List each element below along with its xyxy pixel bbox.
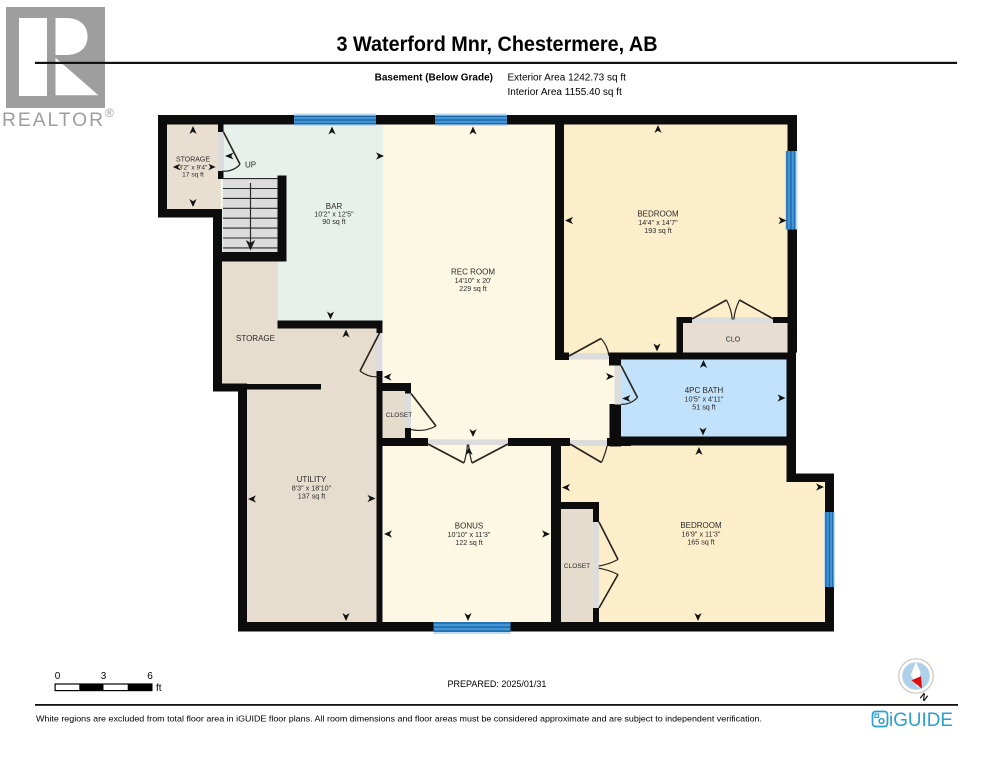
- svg-text:3 Waterford Mnr, Chestermere,: 3 Waterford Mnr, Chestermere, AB: [337, 33, 658, 56]
- svg-text:Exterior Area 1242.73 sq ft: Exterior Area 1242.73 sq ft: [508, 73, 627, 84]
- svg-text:REALTOR: REALTOR: [2, 109, 105, 131]
- svg-text:STORAGE: STORAGE: [176, 157, 210, 164]
- svg-text:Interior Area 1155.40 sq ft: Interior Area 1155.40 sq ft: [508, 87, 623, 98]
- svg-text:165 sq ft: 165 sq ft: [687, 538, 715, 547]
- svg-text:PREPARED: 2025/01/31: PREPARED: 2025/01/31: [448, 679, 547, 689]
- svg-text:6: 6: [147, 671, 153, 682]
- svg-text:193 sq ft: 193 sq ft: [644, 226, 672, 235]
- svg-text:229 sq ft: 229 sq ft: [459, 284, 487, 293]
- svg-text:0: 0: [55, 671, 61, 682]
- svg-text:UP: UP: [245, 161, 256, 170]
- svg-text:51 sq ft: 51 sq ft: [692, 403, 716, 412]
- svg-text:90 sq ft: 90 sq ft: [322, 217, 346, 226]
- svg-text:ft: ft: [156, 683, 162, 694]
- svg-text:White regions are excluded fro: White regions are excluded from total fl…: [36, 714, 762, 724]
- svg-text:iGUIDE: iGUIDE: [889, 709, 953, 731]
- svg-text:122 sq ft: 122 sq ft: [455, 538, 483, 547]
- svg-text:3: 3: [101, 671, 107, 682]
- svg-text:®: ®: [105, 106, 114, 120]
- svg-text:CLOSET: CLOSET: [386, 412, 412, 419]
- svg-text:Basement (Below Grade): Basement (Below Grade): [375, 73, 493, 84]
- svg-text:17 sq ft: 17 sq ft: [182, 171, 204, 178]
- svg-text:CLO: CLO: [726, 337, 741, 344]
- svg-text:137 sq ft: 137 sq ft: [298, 492, 326, 501]
- svg-text:CLOSET: CLOSET: [564, 563, 590, 570]
- svg-text:STORAGE: STORAGE: [236, 334, 275, 343]
